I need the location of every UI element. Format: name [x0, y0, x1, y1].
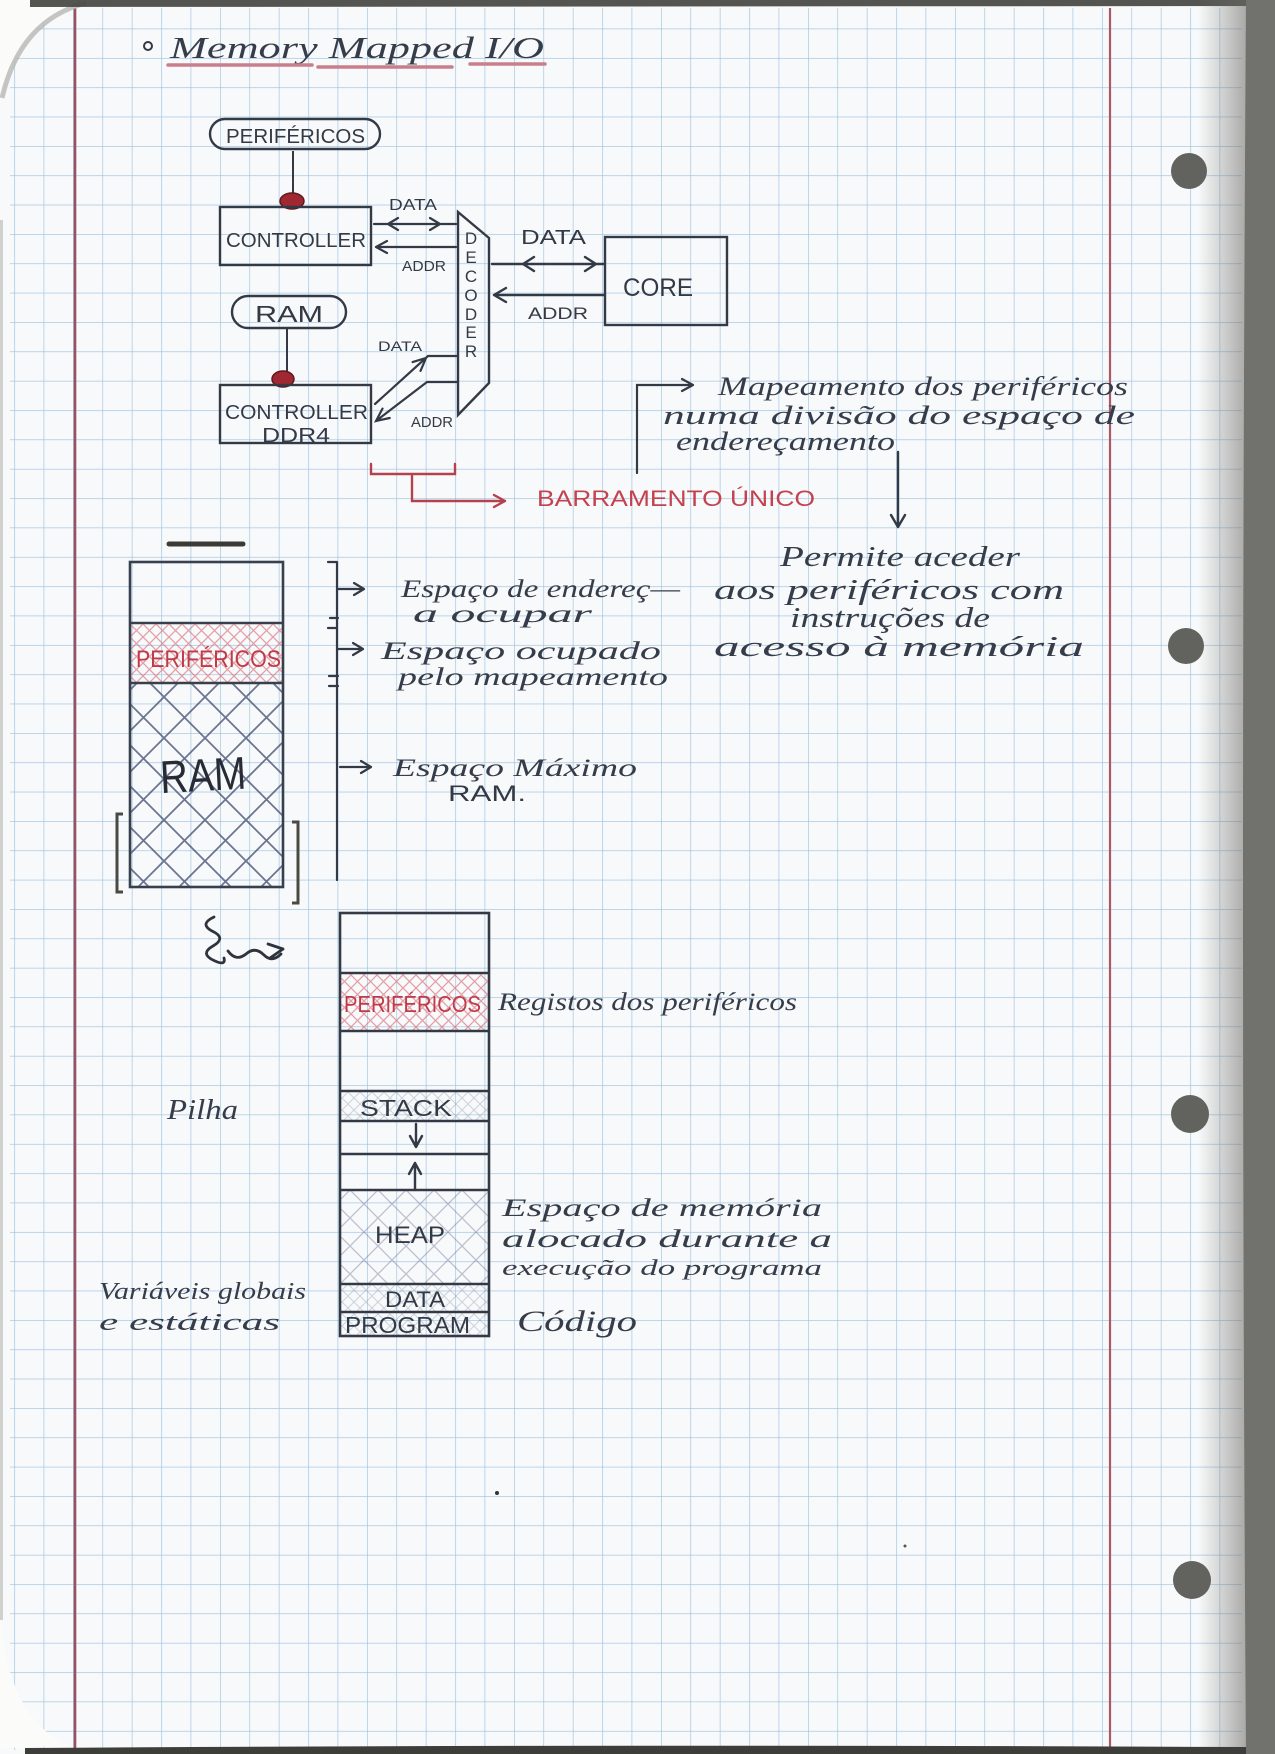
- svg-text:PERIFÉRICOS: PERIFÉRICOS: [226, 125, 365, 148]
- svg-text:e estáticas: e estáticas: [99, 1310, 280, 1336]
- svg-text:acesso à memória: acesso à memória: [714, 632, 1084, 663]
- svg-text:execução do programa: execução do programa: [502, 1255, 822, 1280]
- svg-text:alocado durante a: alocado durante a: [502, 1226, 832, 1253]
- svg-text:CONTROLLER: CONTROLLER: [226, 230, 366, 252]
- svg-text:Espaço de memória: Espaço de memória: [500, 1195, 822, 1222]
- svg-text:BARRAMENTO ÚNICO: BARRAMENTO ÚNICO: [537, 486, 815, 511]
- svg-text:D: D: [465, 305, 477, 324]
- svg-text:Espaço de endereç—: Espaço de endereç—: [400, 576, 681, 603]
- svg-text:CONTROLLER: CONTROLLER: [225, 402, 368, 424]
- svg-text:DATA: DATA: [389, 197, 437, 214]
- svg-text:STACK: STACK: [360, 1095, 453, 1121]
- svg-text:O: O: [464, 286, 477, 305]
- svg-text:Variáveis globais: Variáveis globais: [99, 1279, 306, 1305]
- svg-text:aos periféricos com: aos periféricos com: [714, 575, 1064, 606]
- svg-text:Memory Mapped I/O: Memory Mapped I/O: [169, 30, 544, 65]
- svg-text:RAM: RAM: [159, 747, 248, 803]
- svg-text:PERIFÉRICOS: PERIFÉRICOS: [136, 646, 281, 673]
- svg-text:PROGRAM: PROGRAM: [345, 1312, 470, 1338]
- svg-text:Mapeamento dos periféricos: Mapeamento dos periféricos: [717, 372, 1128, 401]
- svg-text:Registos dos periféricos: Registos dos periféricos: [497, 989, 797, 1016]
- svg-text:E: E: [465, 323, 476, 342]
- svg-text:endereçamento: endereçamento: [676, 427, 895, 456]
- svg-text:Pilha: Pilha: [166, 1095, 238, 1126]
- svg-text:Espaço ocupado: Espaço ocupado: [379, 638, 661, 665]
- svg-text:pelo mapeamento: pelo mapeamento: [395, 664, 668, 691]
- svg-text:ADDR: ADDR: [528, 304, 588, 323]
- svg-text:DDR4: DDR4: [262, 425, 330, 447]
- svg-text:DATA: DATA: [385, 1287, 445, 1312]
- svg-text:numa divisão do espaço de: numa divisão do espaço de: [663, 401, 1135, 430]
- svg-text:C: C: [465, 267, 477, 286]
- svg-text:Permite aceder: Permite aceder: [779, 542, 1021, 573]
- svg-text:a ocupar: a ocupar: [413, 601, 593, 628]
- svg-text:DATA: DATA: [521, 227, 587, 249]
- svg-text:Espaço Máximo: Espaço Máximo: [391, 755, 637, 782]
- svg-text:Código: Código: [517, 1305, 637, 1338]
- svg-text:HEAP: HEAP: [375, 1222, 445, 1249]
- svg-text:ADDR: ADDR: [411, 414, 453, 431]
- svg-text:PERIFÉRICOS: PERIFÉRICOS: [344, 991, 481, 1017]
- svg-text:R: R: [465, 342, 477, 361]
- svg-text:D: D: [465, 229, 477, 248]
- svg-text:DATA: DATA: [378, 338, 423, 354]
- svg-text:instruções de: instruções de: [790, 603, 990, 634]
- svg-text:RAM.: RAM.: [448, 781, 526, 806]
- svg-text:ADDR: ADDR: [402, 258, 446, 275]
- svg-text:E: E: [465, 248, 476, 267]
- svg-text:RAM: RAM: [255, 301, 323, 327]
- svg-text:CORE: CORE: [623, 274, 693, 302]
